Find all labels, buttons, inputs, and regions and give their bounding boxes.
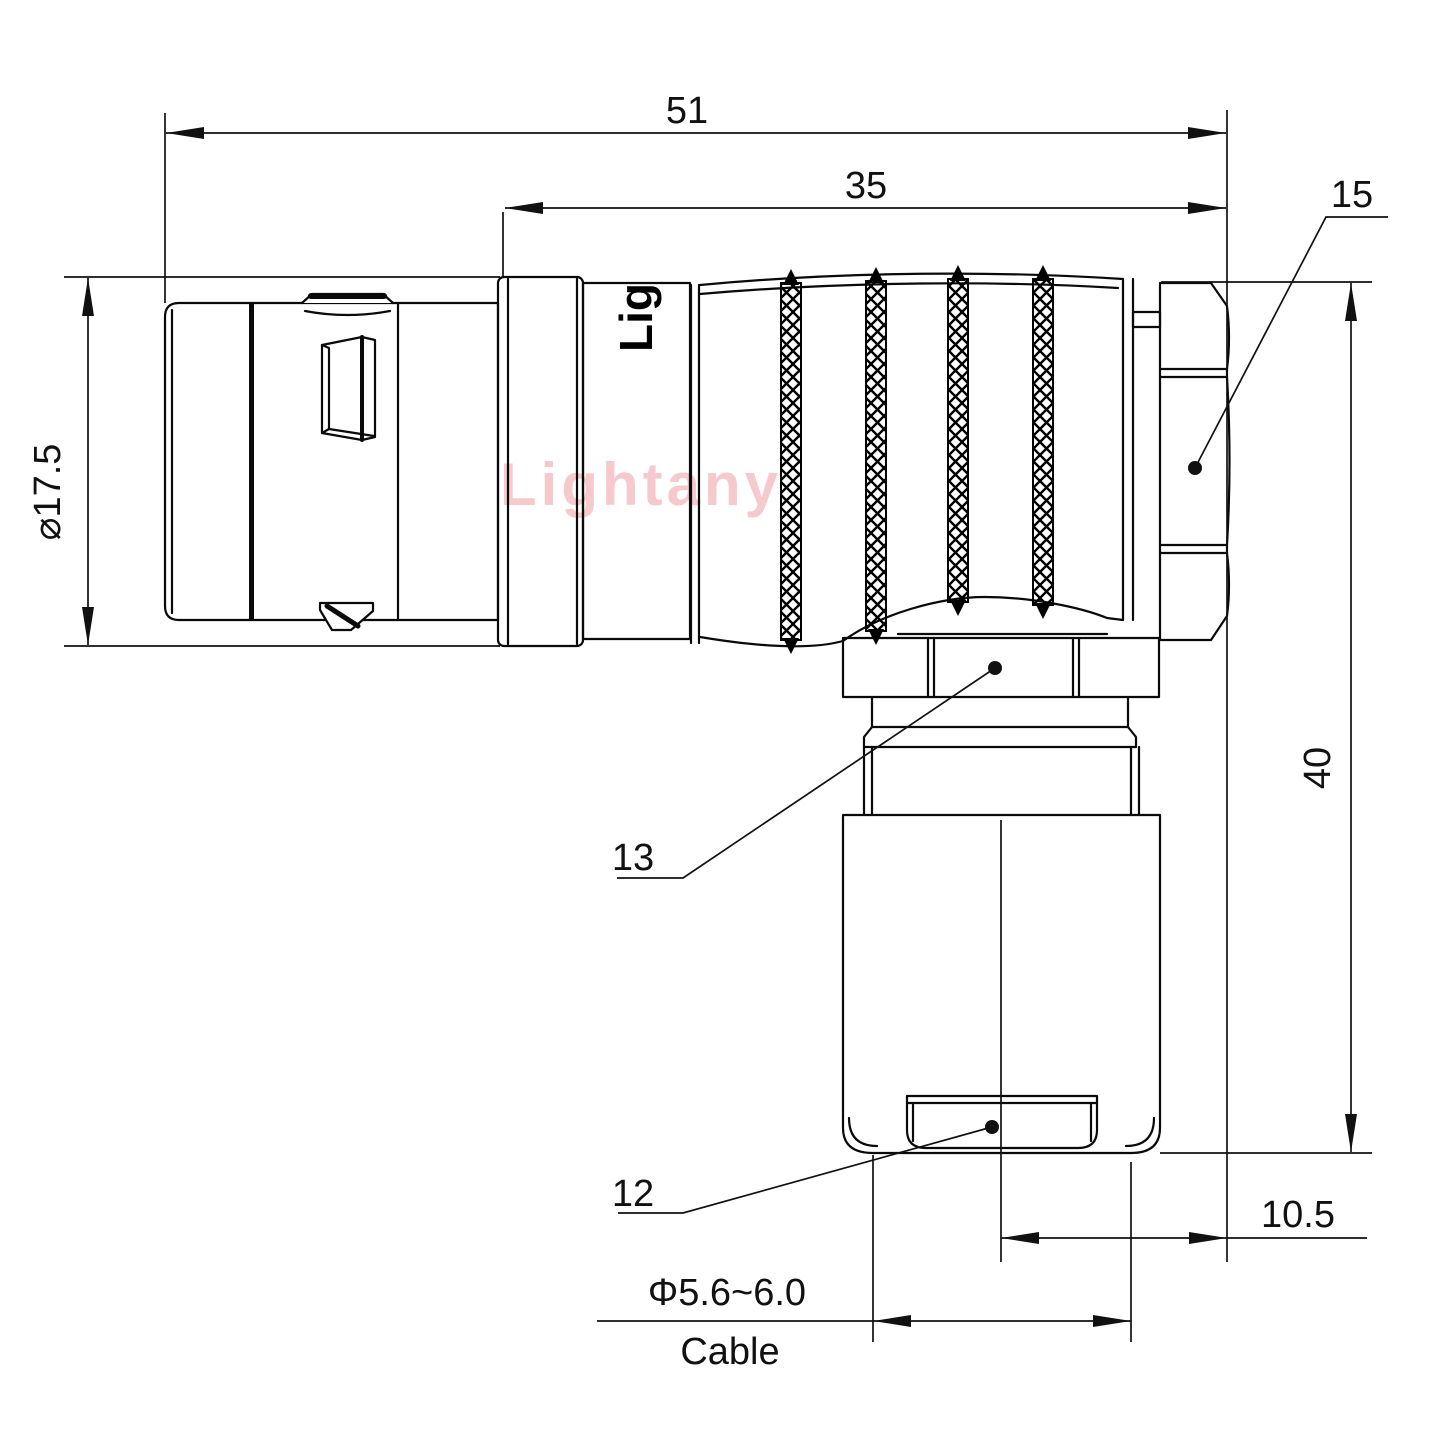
body-marking-text: Lig: [610, 283, 662, 352]
dim-overall-length-label: 51: [666, 90, 708, 132]
connector-outline: [165, 274, 1230, 1153]
dimension-lines: [64, 110, 1388, 1342]
front-nose: [165, 303, 498, 620]
leader-15: [1195, 217, 1388, 468]
dim-height-label: 40: [1297, 747, 1339, 789]
knurl-band: [1033, 265, 1053, 619]
dim-axis-offset-label: 10.5: [1261, 1194, 1335, 1236]
ref-coupling-nut-label: 15: [1331, 174, 1373, 216]
barrel-bottom-edge: [700, 637, 843, 646]
technical-drawing-page: Lightany: [0, 0, 1440, 1440]
dimension-arrows: [82, 127, 1357, 1327]
leader-13: [617, 668, 995, 878]
knurl-band: [948, 265, 968, 616]
knurl-band: [866, 267, 886, 645]
ref-elbow-nut-label: 13: [612, 837, 654, 879]
dim-cable-diameter-label: Φ5.6~6.0: [648, 1272, 806, 1314]
watermark-text: Lightany: [500, 451, 782, 518]
dim-rear-length-label: 35: [845, 165, 887, 207]
dim-front-diameter-label: ⌀17.5: [27, 444, 69, 541]
ref-cable-clamp-label: 12: [612, 1173, 654, 1215]
connector-elbow-drawing: Lightany: [0, 0, 1440, 1440]
knurl-bands: [781, 265, 1053, 654]
knurl-band: [781, 269, 801, 654]
cable-caption-label: Cable: [680, 1331, 779, 1373]
